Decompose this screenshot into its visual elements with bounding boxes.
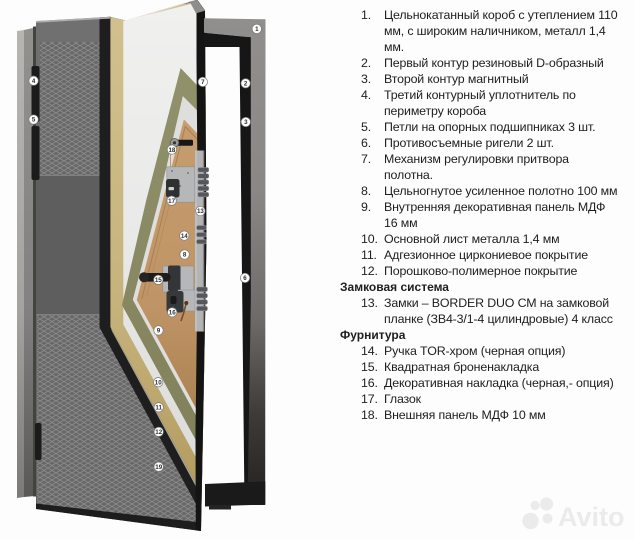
svg-text:16: 16	[169, 310, 176, 317]
svg-text:3: 3	[244, 119, 248, 126]
svg-text:6: 6	[243, 275, 247, 282]
svg-text:10: 10	[155, 379, 162, 386]
svg-text:13: 13	[197, 208, 204, 215]
svg-text:5: 5	[32, 117, 36, 124]
svg-text:Avito: Avito	[558, 502, 625, 532]
svg-text:7: 7	[201, 79, 205, 86]
svg-text:14: 14	[181, 233, 188, 240]
svg-text:19: 19	[155, 464, 162, 471]
svg-text:12: 12	[155, 429, 162, 436]
svg-text:2: 2	[244, 81, 248, 88]
svg-text:4: 4	[32, 78, 36, 85]
svg-text:17: 17	[168, 198, 175, 205]
svg-text:9: 9	[157, 328, 161, 335]
svg-text:11: 11	[155, 405, 162, 412]
svg-text:18: 18	[168, 147, 175, 154]
svg-text:8: 8	[183, 252, 187, 259]
svg-text:15: 15	[155, 277, 162, 284]
svg-text:1: 1	[255, 26, 259, 33]
